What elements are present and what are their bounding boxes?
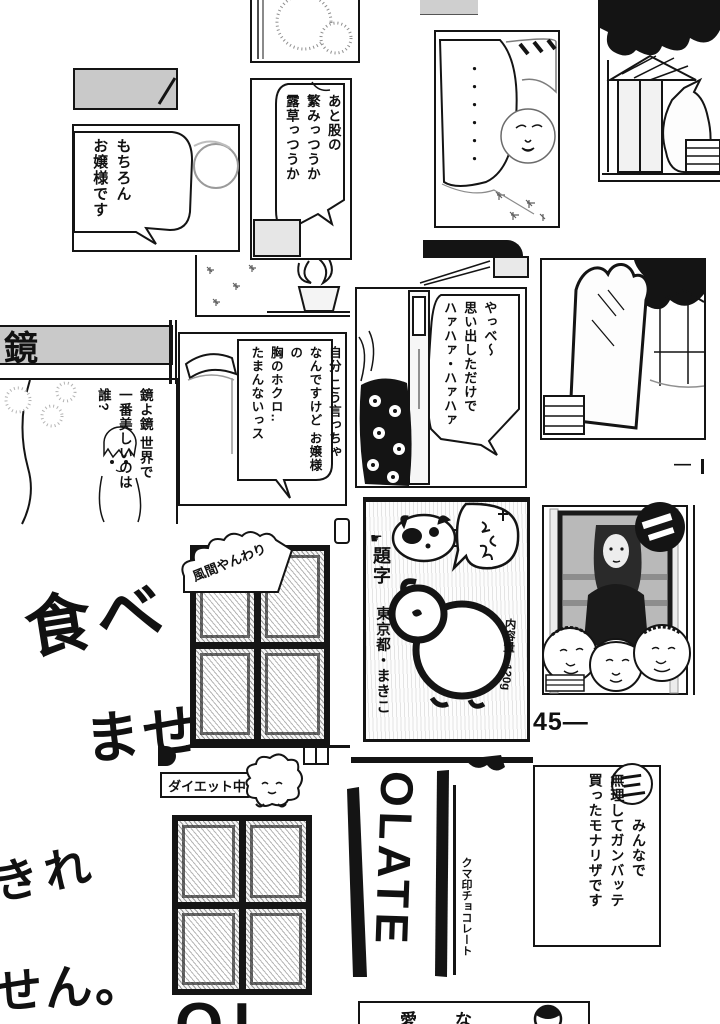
- worried-face: [501, 109, 555, 163]
- chocolate-segment: [178, 821, 239, 902]
- doodle-fragment-box: [334, 518, 350, 544]
- chocolate-segment: [196, 649, 254, 740]
- floral-wall: [207, 265, 256, 306]
- chocolate-segment: [178, 909, 239, 990]
- cut-digit-fragment: [701, 459, 704, 474]
- mona-lisa-panel: [542, 505, 688, 695]
- round-sign: [635, 502, 685, 552]
- polka-dot-clothes: [360, 378, 412, 486]
- gray-title-bar: [73, 68, 178, 110]
- diet-banner-text: ダイエット中: [168, 776, 246, 795]
- handwriting-tabe: 食べ: [17, 555, 174, 672]
- bear-doodle: [238, 758, 302, 810]
- chocolate-segment: [246, 909, 307, 990]
- cut-panel-fragment-top: [420, 0, 478, 15]
- plant-leaves: [298, 259, 332, 283]
- wrapper-brand-text: クマ印チョコレート: [458, 857, 474, 977]
- handwriting-sen: せん。: [0, 943, 146, 1023]
- mona-caption-text: みんなで 無理してガンバッテ 買ったモナリザです: [584, 773, 649, 943]
- bubble-small: [321, 23, 351, 53]
- bottom-panel-strip: 愛な: [358, 1001, 590, 1024]
- mirror-outdoors-panel: [540, 258, 706, 440]
- wrapper-top-border: [351, 757, 533, 763]
- mirror-question-panel: 鏡よ鏡 世界で 一番美しいのは 誰?: [0, 378, 178, 524]
- mona-dress: [584, 584, 648, 641]
- wrapper-right-bar: [435, 770, 449, 977]
- crate-stack: [544, 396, 584, 434]
- border-fragment: [169, 320, 177, 384]
- undergrowth-speech-text: あと股の 繁みっつうか 露草っつうか: [280, 94, 343, 234]
- flashback-text: やっべ〜 思い出しただけで ハァハァ・ハァハァ: [439, 301, 499, 441]
- handwriting-kire: きれ: [0, 828, 102, 914]
- flashback-panel: やっべ〜 思い出しただけで ハァハァ・ハァハァ: [355, 287, 527, 488]
- mirror-sign-bar: 鏡: [0, 325, 173, 365]
- title-credit-panel: ☛ 題字 東京都・まきこ 内容量・120g: [363, 497, 530, 742]
- wrapper-letters-text: OLATE: [367, 770, 420, 977]
- wrapper-left-bar: [347, 787, 367, 977]
- undergrowth-panel: あと股の 繁みっつうか 露草っつうか: [250, 78, 352, 260]
- big-letters-fragment: OL: [175, 996, 345, 1024]
- page-number: 45―: [533, 708, 589, 737]
- title-lettering-label: 題字: [372, 546, 390, 602]
- chocolate-bar-drawing-2: [172, 815, 312, 995]
- maid-answer-panel: もちろん お嬢様です: [72, 124, 240, 252]
- mole-confession-panel: 自分 こう言っちゃ なんですけど お嬢様の 胸のホクロ‥ たまんないっス: [178, 332, 347, 506]
- panel-edge-line: [693, 505, 695, 695]
- scribble-speech-bubble: [454, 504, 518, 568]
- chocolate-wrapper-drawing: OLATE クマ印チョコレート: [345, 755, 535, 985]
- head-highlight: [194, 144, 238, 188]
- plant-shelf-fragment: [195, 255, 350, 317]
- maid-speech-text: もちろん お嬢様です: [88, 138, 135, 238]
- mirror-sign-text: 鏡: [4, 321, 40, 370]
- chocolate-segment: [261, 649, 324, 740]
- mirror-question-text: 鏡よ鏡 世界で 一番美しいのは 誰?: [92, 388, 155, 520]
- plant-pot: [299, 287, 339, 311]
- manga-collage-page: もちろん お嬢様です あと股の 繁みっつうか 露草っつうか ・・: [0, 0, 720, 1024]
- alley-shed-panel: [598, 0, 720, 182]
- chubby-face-right: [634, 625, 690, 681]
- page-edge-mark: ―: [674, 458, 714, 476]
- title-lettering-credit: 東京都・まきこ: [372, 606, 393, 736]
- cut-glyph-fragment: [303, 745, 329, 765]
- silence-dots-text: ・・・・・・: [464, 62, 483, 172]
- face-profile: [359, 331, 374, 381]
- chocolate-segment: [246, 821, 307, 902]
- handwriting-mase: ませ: [81, 685, 206, 776]
- frame-fragment: [420, 255, 532, 285]
- soap-bubbles-panel: [250, 0, 360, 63]
- pointer-hand-icon: ☛: [370, 530, 383, 547]
- cloud-label: 風間やんわり: [182, 536, 302, 592]
- silence-panel: ・・・・・・: [434, 30, 560, 228]
- book-stack: [546, 675, 584, 691]
- mona-caption-panel: 三 みんなで 無理してガンバッテ 買ったモナリザです: [533, 765, 661, 947]
- black-cloud: [600, 0, 720, 56]
- mole-confession-text: 自分 こう言っちゃ なんですけど お嬢様の 胸のホクロ‥ たまんないっス: [246, 346, 343, 474]
